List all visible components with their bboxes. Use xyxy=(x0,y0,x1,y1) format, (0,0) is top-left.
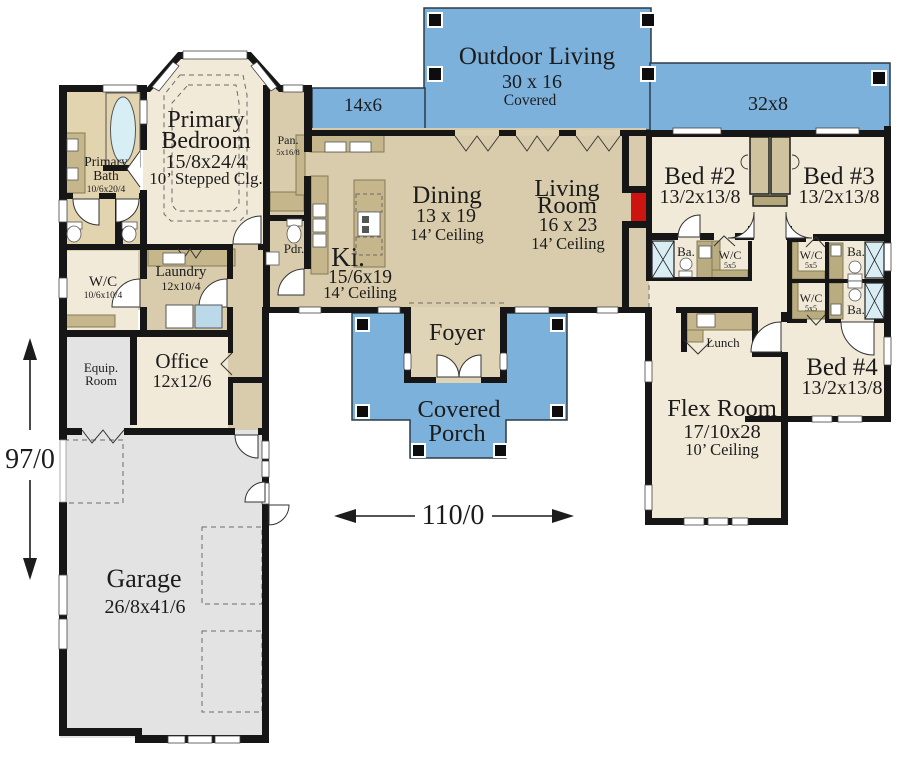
svg-text:W/C: W/C xyxy=(719,248,742,262)
svg-text:Covered: Covered xyxy=(504,92,557,109)
svg-text:12x12/6: 12x12/6 xyxy=(152,371,211,391)
svg-text:13/2x13/8: 13/2x13/8 xyxy=(801,377,882,399)
svg-text:14’ Ceiling: 14’ Ceiling xyxy=(410,225,483,244)
svg-text:W/C: W/C xyxy=(800,291,823,305)
svg-text:W/C: W/C xyxy=(89,274,117,290)
svg-text:12x10/4: 12x10/4 xyxy=(161,279,200,293)
svg-text:13/2x13/8: 13/2x13/8 xyxy=(798,186,879,208)
svg-text:26/8x41/6: 26/8x41/6 xyxy=(104,596,185,618)
svg-text:5x16/8: 5x16/8 xyxy=(276,147,300,157)
svg-text:13/2x13/8: 13/2x13/8 xyxy=(659,186,740,208)
svg-text:13 x 19: 13 x 19 xyxy=(416,205,476,227)
svg-text:Room: Room xyxy=(85,373,117,388)
svg-text:Pdr.: Pdr. xyxy=(284,241,305,256)
svg-text:97/0: 97/0 xyxy=(5,444,55,475)
svg-text:W/C: W/C xyxy=(800,248,823,262)
svg-text:Office: Office xyxy=(155,349,208,373)
svg-text:30 x 16: 30 x 16 xyxy=(502,71,562,93)
svg-text:10/6x20/4: 10/6x20/4 xyxy=(87,185,126,195)
svg-text:5x5: 5x5 xyxy=(805,304,817,313)
svg-text:10/6x10/4: 10/6x10/4 xyxy=(84,291,123,301)
svg-text:5x5: 5x5 xyxy=(724,261,736,270)
svg-text:Covered: Covered xyxy=(418,396,501,423)
svg-text:110/0: 110/0 xyxy=(422,500,485,531)
svg-text:Flex Room: Flex Room xyxy=(667,395,777,422)
svg-text:Primary: Primary xyxy=(84,154,128,169)
svg-text:16 x 23: 16 x 23 xyxy=(539,215,598,236)
svg-text:Garage: Garage xyxy=(106,564,181,593)
svg-text:5x5: 5x5 xyxy=(805,261,817,270)
svg-text:10’ Stepped Clg.: 10’ Stepped Clg. xyxy=(149,169,262,188)
svg-text:10’ Ceiling: 10’ Ceiling xyxy=(685,440,758,459)
svg-text:14’ Ceiling: 14’ Ceiling xyxy=(323,283,396,302)
svg-text:Laundry: Laundry xyxy=(156,264,207,280)
svg-text:Ba.: Ba. xyxy=(677,244,695,259)
svg-text:14’ Ceiling: 14’ Ceiling xyxy=(531,234,604,253)
svg-text:Ba.: Ba. xyxy=(847,244,865,259)
svg-text:Porch: Porch xyxy=(428,420,485,447)
svg-text:Lunch: Lunch xyxy=(706,335,740,350)
svg-text:14x6: 14x6 xyxy=(344,95,382,116)
svg-text:32x8: 32x8 xyxy=(748,93,788,115)
svg-text:Pan.: Pan. xyxy=(278,133,299,147)
svg-text:Outdoor Living: Outdoor Living xyxy=(459,43,616,70)
svg-text:Ba.: Ba. xyxy=(847,302,865,317)
svg-text:Foyer: Foyer xyxy=(429,320,485,346)
svg-text:Bath: Bath xyxy=(93,168,119,183)
